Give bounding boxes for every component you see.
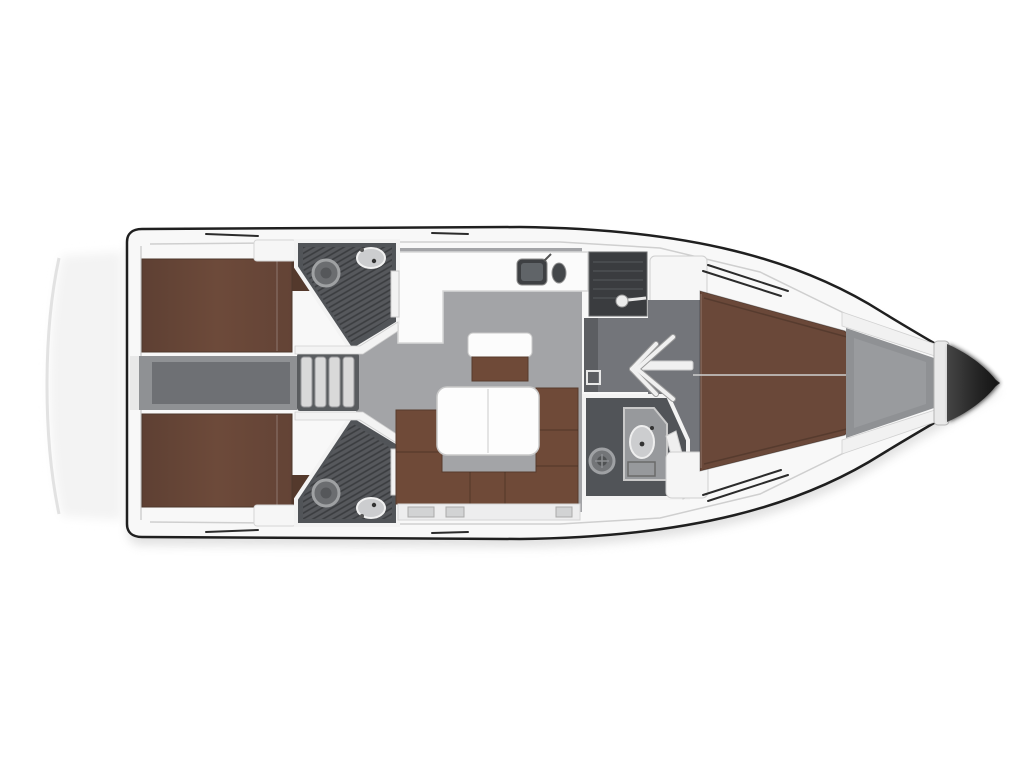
head-aft-port-toilet-bowl — [321, 268, 332, 279]
nav-seat — [616, 295, 628, 307]
aft-cabin-starboard-berth — [142, 414, 292, 507]
locker-3 — [556, 507, 572, 517]
side-bench — [468, 333, 532, 381]
engine-compartment — [130, 356, 297, 410]
head-aft-starboard-drain — [372, 503, 376, 507]
head-aft-port-door — [391, 271, 399, 317]
aft-cabin-starboard-wardrobe — [254, 505, 296, 526]
bow-tip-cone — [947, 344, 998, 422]
locker-1 — [408, 507, 434, 517]
page — [0, 0, 1024, 768]
head-aft-port-faucet — [360, 248, 364, 252]
head-aft-starboard-toilet-bowl — [321, 488, 332, 499]
head-aft-starboard-faucet — [360, 514, 364, 518]
side-bench-table-top — [468, 333, 532, 357]
forward-head-faucet — [650, 426, 654, 430]
forward-cabin-cabinet — [650, 256, 707, 306]
side-bench-seat — [472, 357, 528, 381]
galley-sink-basin — [521, 263, 543, 281]
nav-station — [589, 252, 647, 316]
anchor-locker — [842, 312, 949, 454]
step-4 — [343, 357, 354, 407]
saloon-table — [437, 387, 539, 455]
nav-seat-arm — [628, 298, 646, 300]
step-1 — [301, 357, 312, 407]
engine-corridor-end-cap — [130, 356, 139, 410]
galley-second-sink — [552, 263, 566, 283]
head-aft-port-drain — [372, 259, 376, 263]
yacht-floor-plan — [0, 0, 1024, 768]
step-3 — [329, 357, 340, 407]
bow-bulkhead — [934, 341, 949, 425]
locker-2 — [446, 507, 464, 517]
forward-head-drain — [640, 442, 645, 447]
under-sofa-lockers — [398, 504, 580, 520]
deck-track-mid-top — [432, 233, 468, 234]
aft-cabin-port-wardrobe — [254, 240, 296, 261]
step-2 — [315, 357, 326, 407]
swim-platform — [47, 252, 122, 520]
engine-hatch — [152, 362, 290, 404]
swim-platform-wash — [50, 252, 122, 520]
deck-track-mid-bottom — [432, 532, 468, 533]
aft-cabin-port-berth — [142, 259, 292, 352]
bow-tip — [947, 344, 1000, 422]
